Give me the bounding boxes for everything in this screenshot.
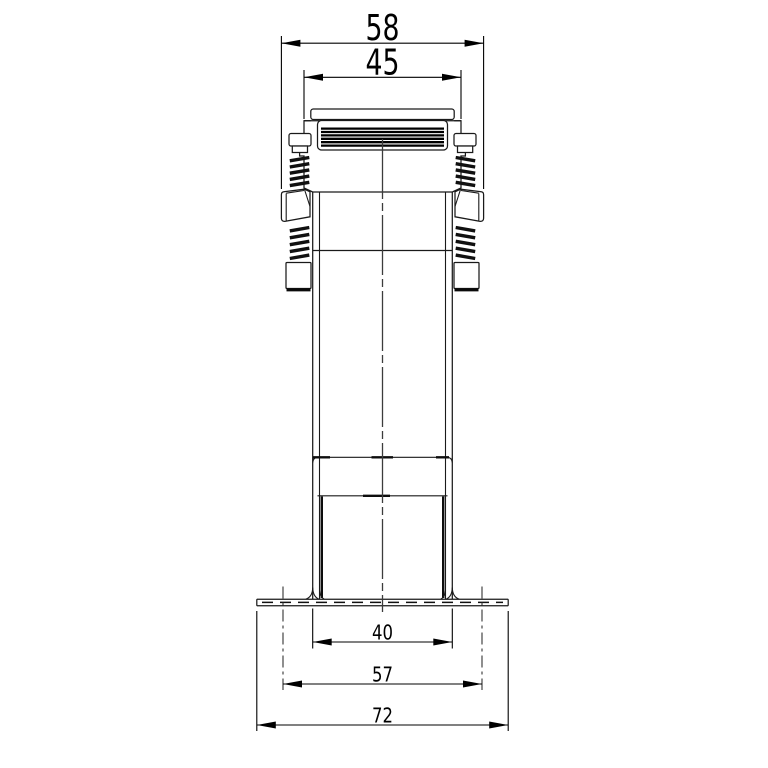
coil-turn [456, 255, 476, 258]
dimension-72-label: 72 [372, 703, 393, 727]
technical-drawing-canvas: 58 45 40 57 72 [0, 0, 768, 768]
dimension-57: 57 [283, 662, 482, 687]
arrowhead-right [442, 74, 461, 81]
arrowhead-right [465, 40, 484, 47]
upper-screw-head-right [454, 134, 476, 147]
spring-lower-left [290, 228, 310, 259]
coil-turn [290, 248, 310, 251]
arrowhead-right [463, 681, 482, 688]
coil-turn [290, 228, 310, 231]
clamp-foot-right [454, 263, 479, 289]
dimension-57-label: 57 [372, 662, 393, 686]
top-cap-plate [311, 109, 454, 120]
coil-turn [456, 248, 476, 251]
coil-turn [290, 241, 310, 244]
upper-screw-neck-right [458, 146, 473, 153]
arrowhead-left [281, 40, 300, 47]
coil-turn [456, 176, 476, 179]
coil-turn [456, 182, 476, 185]
coil-turn [456, 164, 476, 167]
coil-turn [456, 241, 476, 244]
coil-turn [456, 170, 476, 173]
arrowhead-left [283, 681, 302, 688]
arrowhead-right [433, 639, 452, 646]
coil-turn [456, 234, 476, 237]
arrowhead-right [489, 722, 508, 729]
top-cap [311, 109, 454, 120]
coil-turn [290, 158, 310, 161]
dimension-45-label: 45 [366, 42, 400, 83]
coil-turn [290, 234, 310, 237]
coil-turn [290, 182, 310, 185]
technical-drawing: 58 45 40 57 72 [0, 0, 768, 768]
upper-screw-head-left [289, 134, 311, 147]
arrowhead-left [313, 639, 332, 646]
dimension-40: 40 [313, 609, 453, 649]
dimension-45: 45 [304, 42, 461, 119]
coil-turn [456, 158, 476, 161]
spring-lower-right [456, 228, 476, 259]
upper-screw-neck-left [292, 146, 307, 153]
dimension-40-label: 40 [372, 620, 393, 644]
coil-turn [290, 176, 310, 179]
screw-clamp-left [281, 134, 311, 290]
coil-turn [290, 164, 310, 167]
spring-upper-left [290, 158, 310, 186]
coil-turn [290, 255, 310, 258]
coil-turn [290, 170, 310, 173]
coil-turn [456, 228, 476, 231]
clamp-foot-left [286, 263, 311, 289]
arrowhead-left [304, 74, 323, 81]
screw-clamp-right [454, 134, 484, 290]
spring-upper-right [456, 158, 476, 186]
arrowhead-left [257, 722, 276, 729]
